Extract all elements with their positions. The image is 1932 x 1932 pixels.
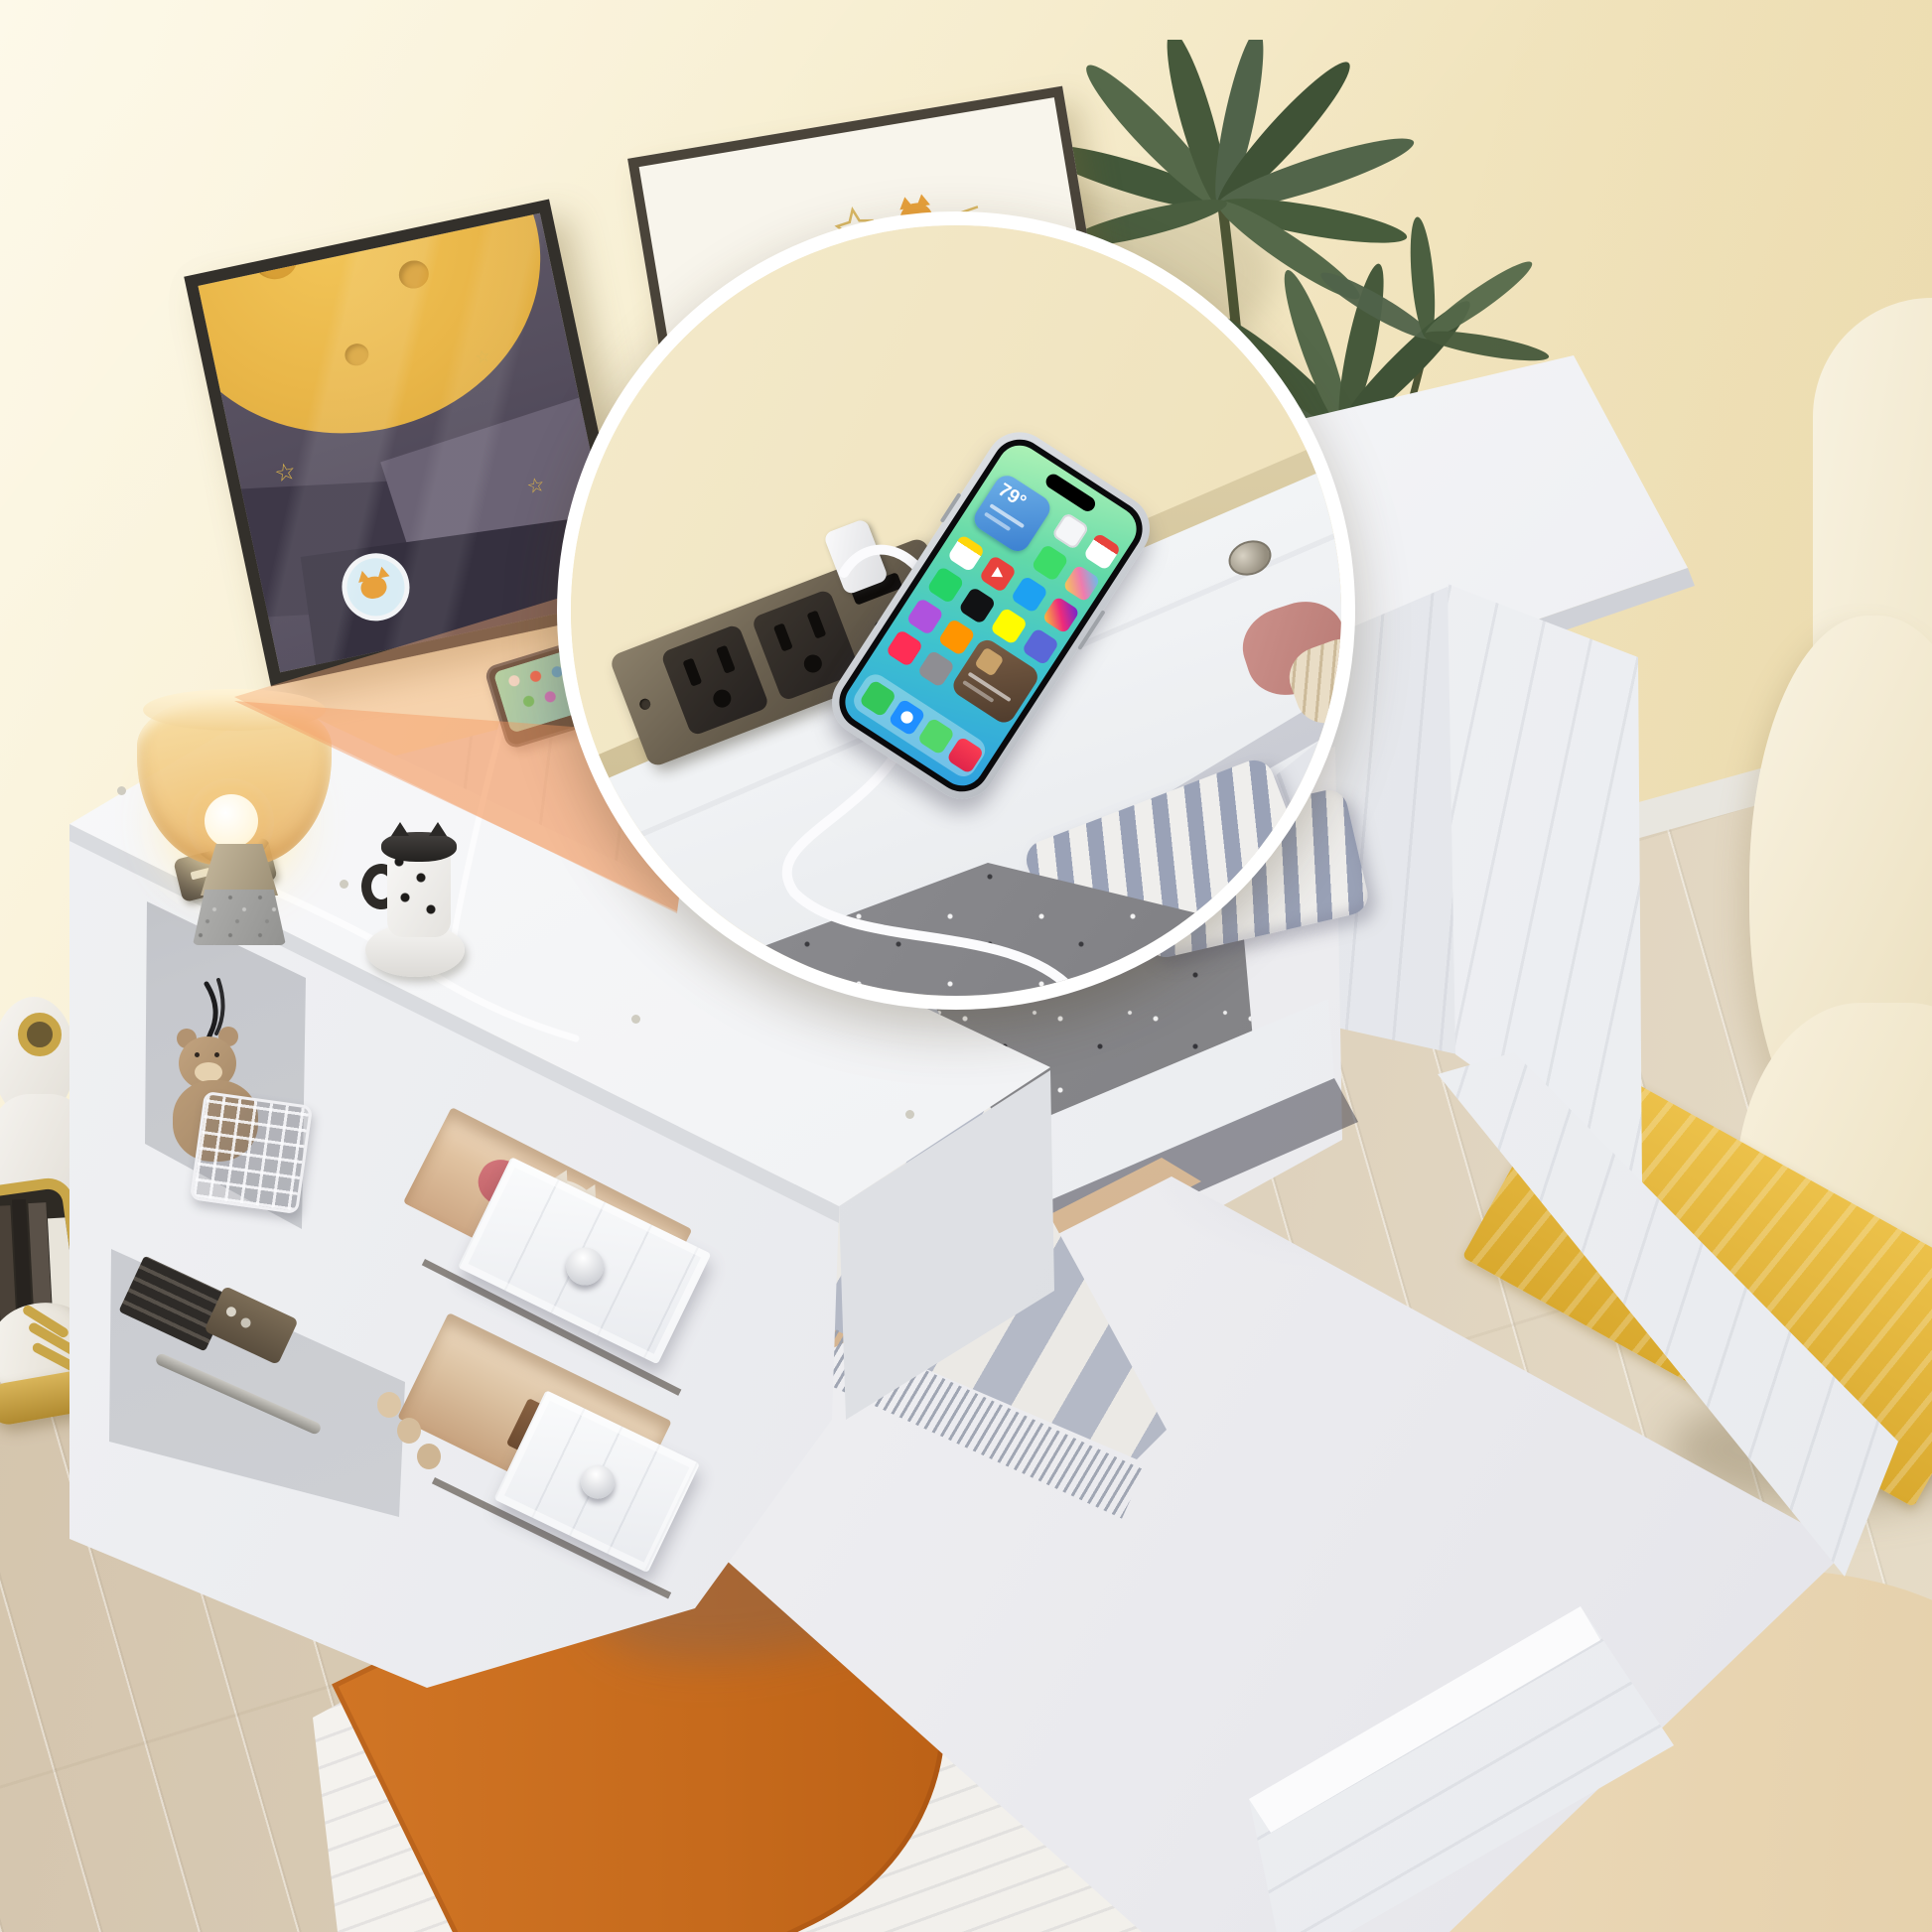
wire-basket [190,1091,313,1214]
app-icon-tiktok [958,587,997,625]
app-icon-whatsapp [926,566,965,605]
console-foot [377,1392,401,1418]
app-icon-twitter [1010,575,1048,614]
dock-icon-music [946,736,985,774]
drawer-knob [560,1241,611,1292]
app-icon-appstore [1022,627,1060,666]
app-icon-calendar [1083,532,1122,571]
teddy-muzzle [195,1062,222,1082]
screw-cap [117,786,126,795]
app-icon-health [886,629,924,668]
magnifier-inset: 79° [557,211,1355,1010]
app-icon-facetime [1031,543,1069,582]
app-icon-notes [947,534,986,573]
weather-widget: 79° [970,471,1055,556]
dock-icon-phone [859,679,897,718]
console-foot [417,1444,441,1469]
drawer-knob [575,1459,620,1504]
dynamic-island [1043,472,1098,514]
app-icon-youtube [979,555,1018,594]
mug-cat-lid [381,832,457,862]
screw-cap [905,1110,914,1119]
scene: ☆ ☆ ☆ [0,0,1932,1932]
app-icon-snapchat [990,607,1029,645]
console-foot [397,1418,421,1444]
lamp-bulb [205,794,258,848]
robot-ear-gold [18,1013,62,1056]
app-icon-wallet [937,618,976,656]
lamp-base-granite [193,890,286,945]
app-icon-podcasts [905,598,944,636]
app-icon-instagram [1041,596,1080,634]
app-icon-settings [917,649,956,688]
app-icon-photos [1062,564,1101,603]
cat-mug [357,820,477,999]
dock-icon-messages [917,717,956,756]
dock-icon-safari [888,698,926,737]
app-icon-clock [1051,512,1090,551]
